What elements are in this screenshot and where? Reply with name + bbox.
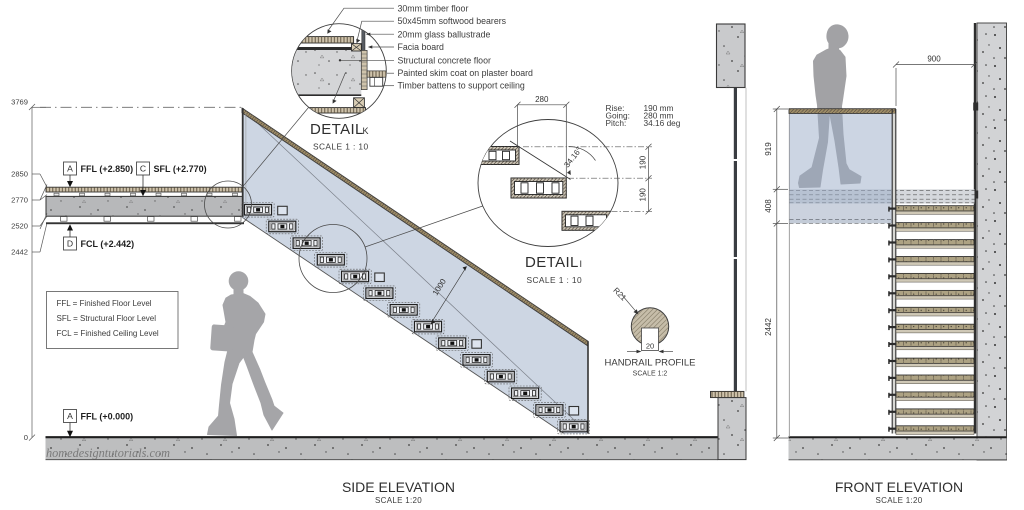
svg-text:SCALE 1:20: SCALE 1:20 <box>375 496 422 505</box>
svg-text:280: 280 <box>535 95 549 104</box>
svg-text:919: 919 <box>764 142 773 156</box>
svg-text:HANDRAIL PROFILE: HANDRAIL PROFILE <box>605 358 696 369</box>
svg-text:SIDE ELEVATION: SIDE ELEVATION <box>342 479 455 495</box>
svg-text:34.16 deg: 34.16 deg <box>644 118 681 128</box>
svg-text:A: A <box>67 164 73 174</box>
svg-text:A: A <box>67 411 73 421</box>
svg-text:Structural concrete floor: Structural concrete floor <box>398 55 491 65</box>
svg-text:DETAIL: DETAIL <box>525 254 579 271</box>
svg-text:Painted skim coat on plaster b: Painted skim coat on plaster board <box>398 68 534 78</box>
svg-text:2442: 2442 <box>11 248 28 257</box>
svg-text:FFL (+2.850): FFL (+2.850) <box>81 164 134 174</box>
svg-text:900: 900 <box>927 55 941 64</box>
svg-text:D: D <box>67 239 73 249</box>
svg-text:homedesigntutorials.com: homedesigntutorials.com <box>46 446 170 460</box>
svg-text:SCALE 1:2: SCALE 1:2 <box>633 371 668 378</box>
svg-text:FRONT ELEVATION: FRONT ELEVATION <box>835 479 963 495</box>
svg-text:3769: 3769 <box>11 98 28 107</box>
svg-text:SFL (+2.770): SFL (+2.770) <box>154 164 207 174</box>
svg-text:SFL = Structural Floor Level: SFL = Structural Floor Level <box>57 314 157 323</box>
svg-text:2770: 2770 <box>11 196 28 205</box>
svg-text:FCL (+2.442): FCL (+2.442) <box>81 239 135 249</box>
svg-text:0: 0 <box>24 433 28 442</box>
svg-text:50x45mm softwood bearers: 50x45mm softwood bearers <box>398 16 507 26</box>
svg-text:190: 190 <box>639 155 648 169</box>
svg-text:20mm glass ballustrade: 20mm glass ballustrade <box>398 29 491 39</box>
svg-text:Pitch:: Pitch: <box>606 118 627 128</box>
svg-text:SCALE 1 : 10: SCALE 1 : 10 <box>313 142 369 152</box>
svg-text:SCALE 1:20: SCALE 1:20 <box>875 496 922 505</box>
svg-text:20: 20 <box>646 342 654 351</box>
svg-text:I: I <box>580 259 583 269</box>
svg-text:30mm timber floor: 30mm timber floor <box>398 3 469 13</box>
svg-text:2442: 2442 <box>764 318 773 336</box>
svg-text:FCL = Finished Ceiling Level: FCL = Finished Ceiling Level <box>57 329 159 338</box>
svg-text:SCALE 1 : 10: SCALE 1 : 10 <box>527 275 583 285</box>
svg-text:408: 408 <box>764 199 773 213</box>
svg-text:2850: 2850 <box>11 170 28 179</box>
svg-text:DETAIL: DETAIL <box>310 121 364 138</box>
svg-text:2520: 2520 <box>11 222 28 231</box>
svg-text:C: C <box>140 164 146 174</box>
svg-text:Facia board: Facia board <box>398 42 445 52</box>
svg-text:Timber battens to support ceil: Timber battens to support ceiling <box>398 81 525 91</box>
svg-text:K: K <box>363 126 369 136</box>
svg-text:FFL (+0.000): FFL (+0.000) <box>81 412 134 422</box>
svg-text:FFL = Finished Floor Level: FFL = Finished Floor Level <box>57 299 152 308</box>
svg-text:190: 190 <box>639 188 648 202</box>
